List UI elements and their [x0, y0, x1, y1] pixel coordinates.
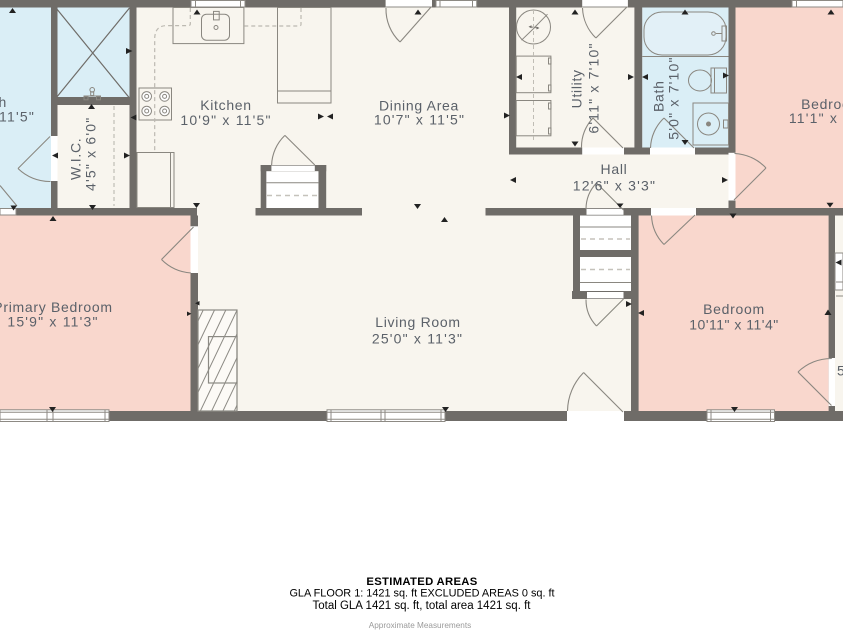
svg-text:Bedroom: Bedroom	[703, 301, 765, 317]
svg-text:5'0" x 7'10": 5'0" x 7'10"	[666, 56, 682, 139]
svg-text:6'11" x 7'10": 6'11" x 7'10"	[586, 42, 602, 133]
svg-text:Bath: Bath	[651, 80, 667, 112]
svg-text:10'7" x 11'5": 10'7" x 11'5"	[374, 112, 465, 128]
svg-text:10'11" x 11'4": 10'11" x 11'4"	[689, 317, 779, 333]
svg-text:GLA FLOOR 1: 1421 sq. ft EXCLU: GLA FLOOR 1: 1421 sq. ft EXCLUDED AREAS …	[289, 588, 554, 600]
svg-text:11'1" x 11'4": 11'1" x 11'4"	[789, 110, 843, 126]
svg-text:10'9" x 11'5": 10'9" x 11'5"	[180, 112, 271, 128]
svg-text:4'5" x 6'0": 4'5" x 6'0"	[83, 117, 99, 191]
svg-text:15'9" x 11'3": 15'9" x 11'3"	[7, 314, 98, 330]
svg-text:Utility: Utility	[569, 69, 585, 108]
svg-text:Kitchen: Kitchen	[200, 97, 252, 113]
svg-text:W.I.C.: W.I.C.	[68, 138, 84, 180]
svg-text:Hall: Hall	[601, 161, 628, 177]
svg-text:Total GLA 1421 sq. ft, total a: Total GLA 1421 sq. ft, total area 1421 s…	[312, 600, 531, 612]
svg-text:25'0" x 11'3": 25'0" x 11'3"	[372, 331, 463, 347]
svg-text:ESTIMATED AREAS: ESTIMATED AREAS	[366, 576, 477, 588]
svg-text:Living Room: Living Room	[375, 314, 461, 330]
svg-text:Approximate Measurements: Approximate Measurements	[369, 621, 471, 630]
svg-text:5'0": 5'0"	[837, 363, 843, 379]
svg-text:8'1" x 11'5": 8'1" x 11'5"	[0, 109, 35, 125]
svg-text:12'6" x 3'3": 12'6" x 3'3"	[573, 178, 656, 194]
